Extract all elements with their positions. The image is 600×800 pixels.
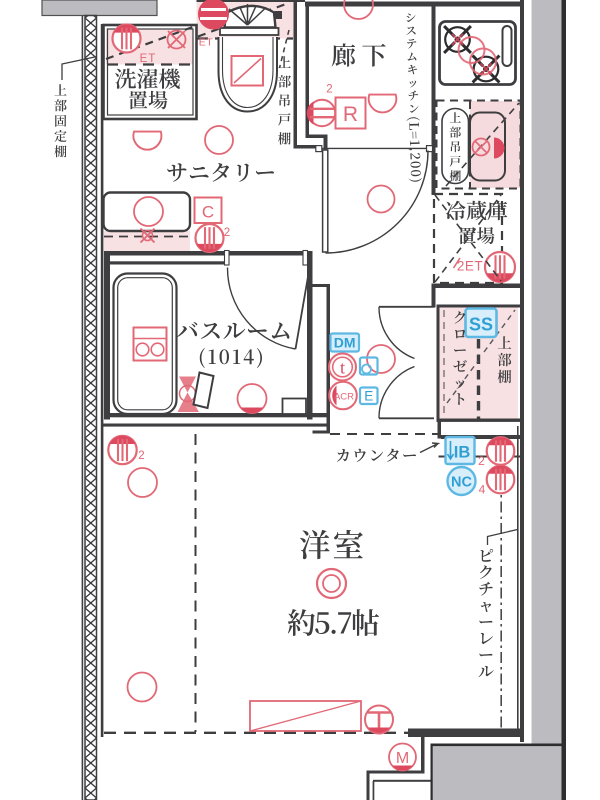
svg-text:IB: IB (454, 444, 471, 462)
svg-text:DM: DM (334, 335, 356, 351)
svg-text:ET: ET (199, 37, 214, 49)
svg-text:ACR: ACR (334, 392, 354, 403)
svg-text:2ET: 2ET (457, 259, 483, 274)
svg-text:M: M (396, 750, 409, 767)
svg-text:2: 2 (138, 450, 144, 462)
svg-text:E: E (364, 389, 373, 404)
svg-text:ET: ET (140, 53, 157, 65)
svg-text:NC: NC (451, 475, 472, 491)
svg-text:R: R (343, 103, 358, 126)
svg-text:4: 4 (479, 483, 486, 497)
svg-text:C: C (202, 203, 214, 222)
svg-text:2: 2 (478, 454, 485, 468)
svg-text:t: t (340, 358, 345, 378)
svg-text:2: 2 (326, 84, 332, 96)
svg-text:SS: SS (469, 315, 493, 335)
svg-text:2: 2 (224, 227, 230, 239)
